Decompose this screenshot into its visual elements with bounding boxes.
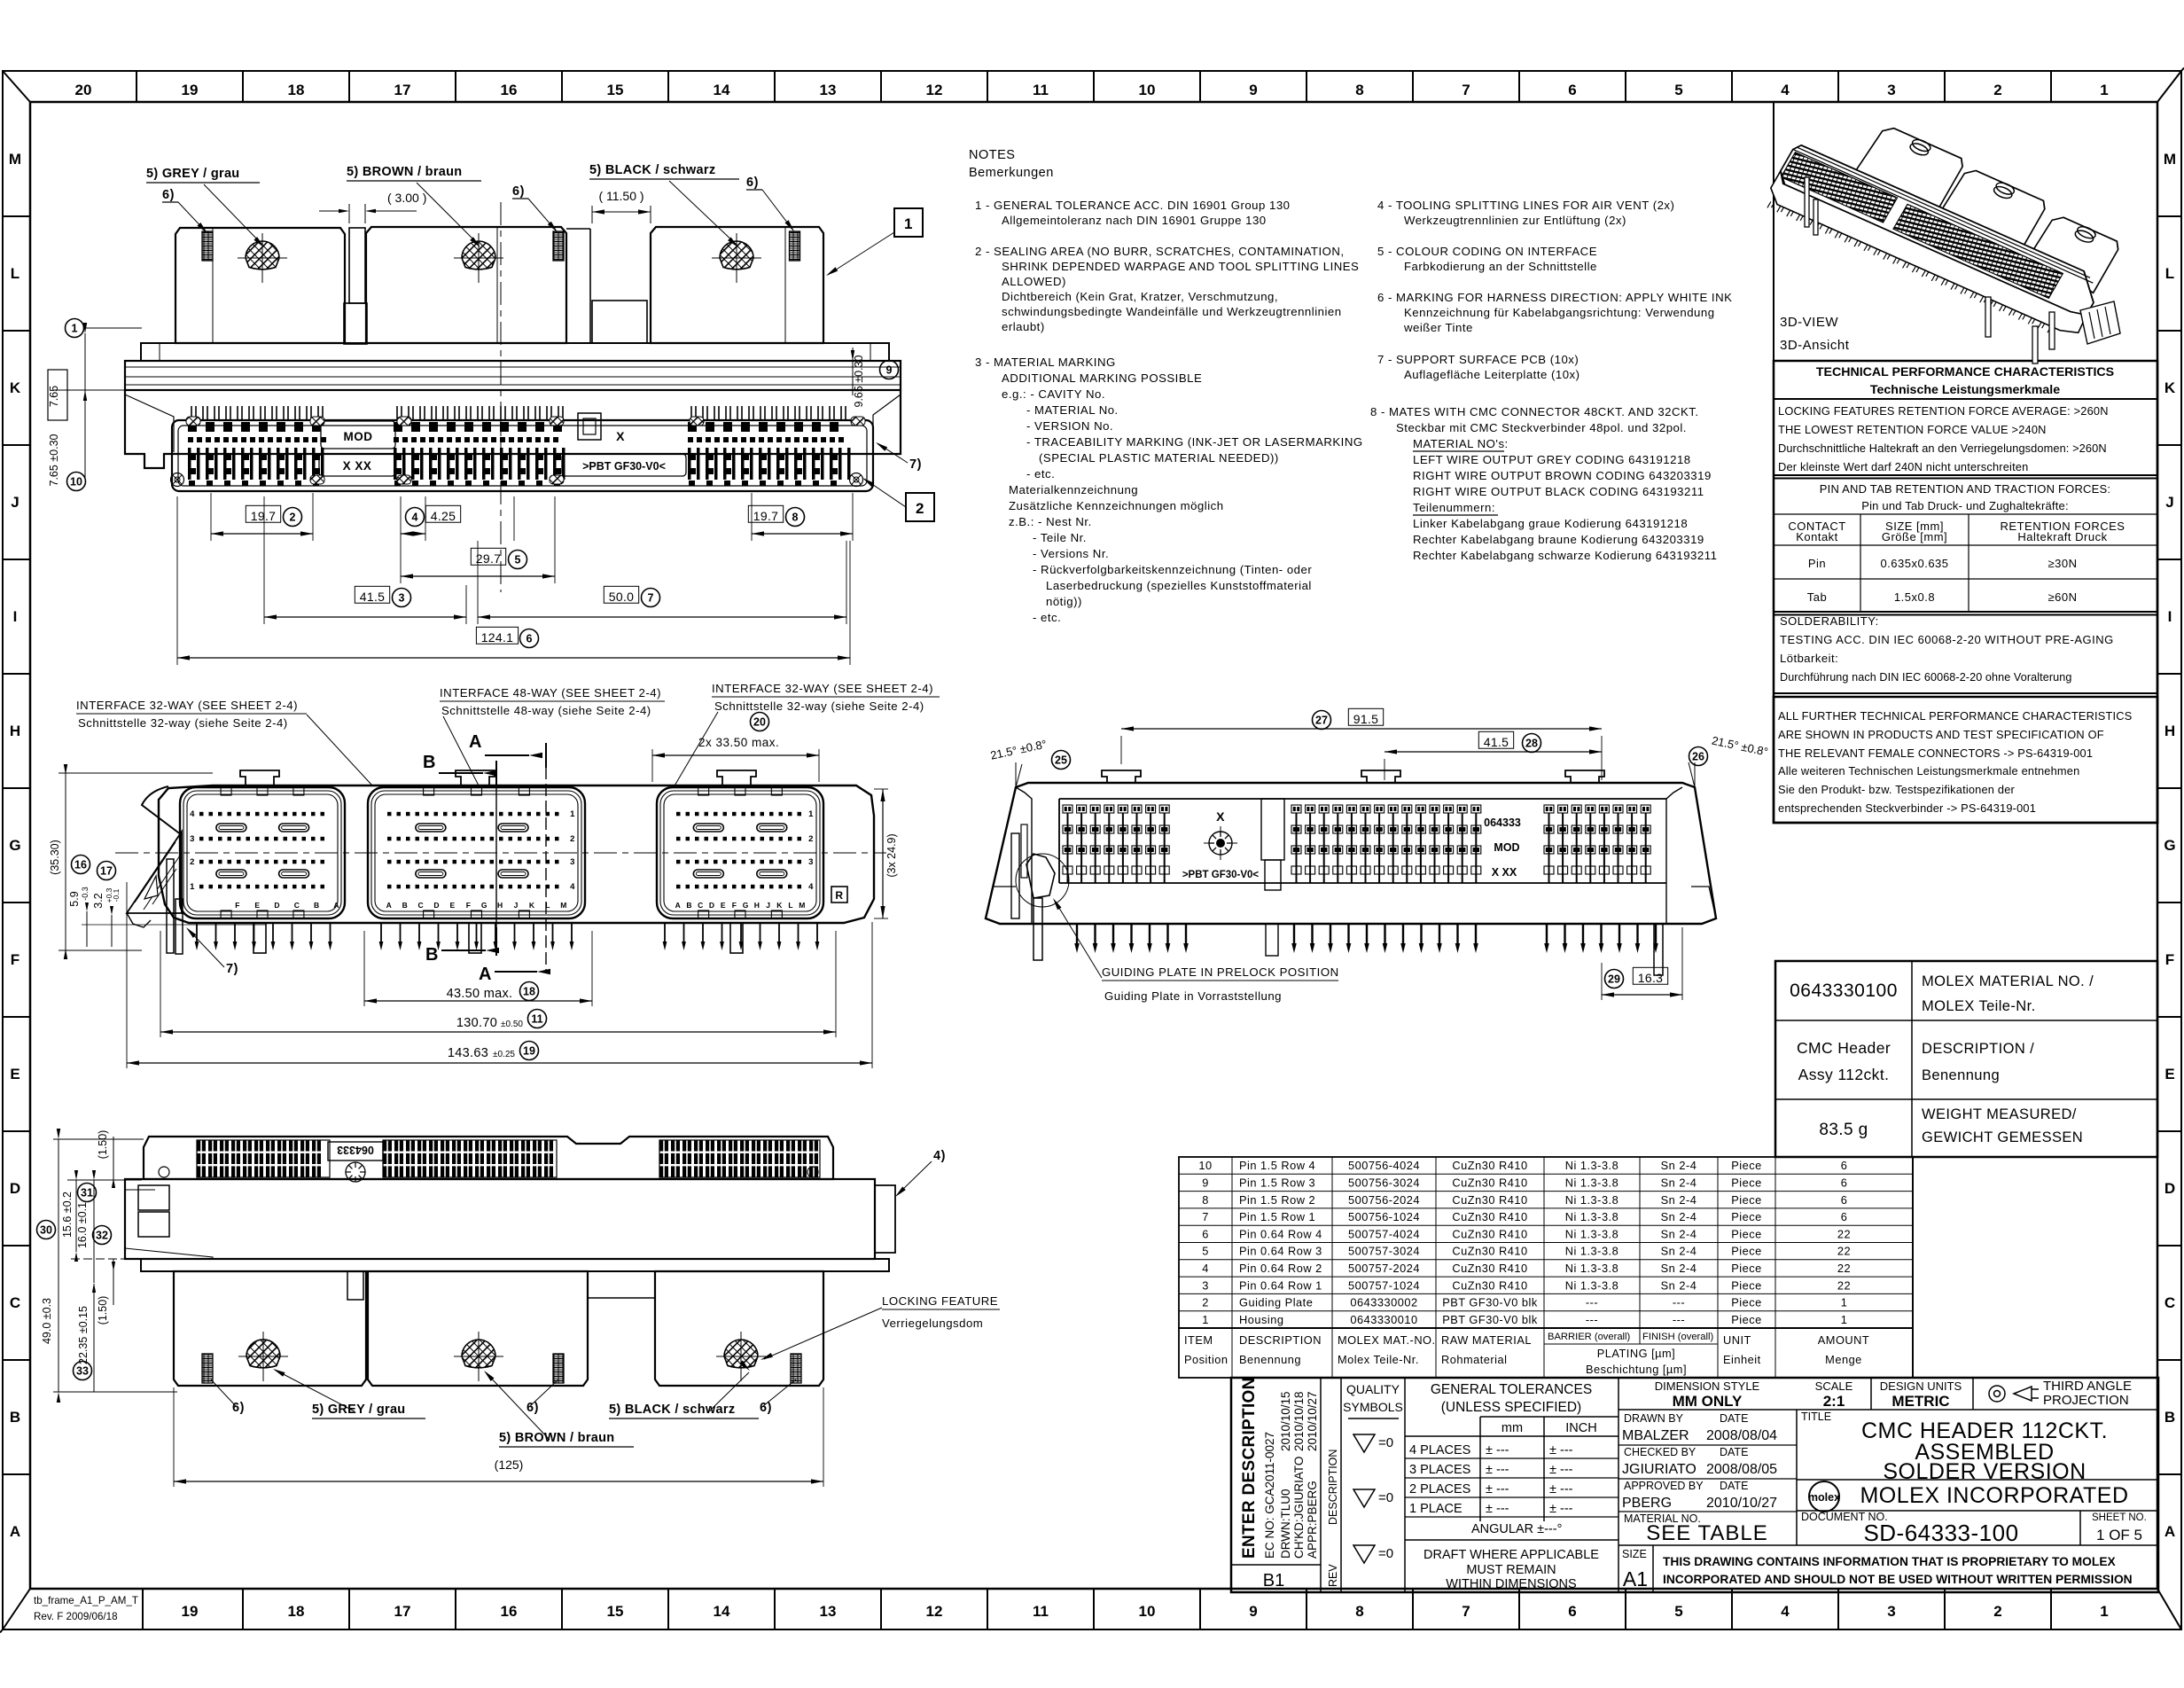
svg-text:METRIC: METRIC bbox=[1891, 1393, 1949, 1410]
svg-text:D: D bbox=[2164, 1180, 2175, 1197]
svg-text:Ni 1.3-3.8: Ni 1.3-3.8 bbox=[1565, 1262, 1618, 1275]
svg-text:APPROVED BY: APPROVED BY bbox=[1624, 1480, 1704, 1492]
svg-text:1.5x0.8: 1.5x0.8 bbox=[1894, 590, 1935, 604]
svg-text:B: B bbox=[2164, 1409, 2175, 1426]
svg-text:DATE: DATE bbox=[1720, 1446, 1748, 1458]
svg-text:Piece: Piece bbox=[1731, 1262, 1762, 1275]
svg-text:SHEET NO.: SHEET NO. bbox=[2092, 1512, 2147, 1523]
svg-text:MM ONLY: MM ONLY bbox=[1673, 1393, 1743, 1410]
svg-text:1: 1 bbox=[72, 322, 78, 334]
svg-text:MOLEX Teile-Nr.: MOLEX Teile-Nr. bbox=[1922, 998, 2036, 1014]
svg-text:CuZn30 R410: CuZn30 R410 bbox=[1452, 1193, 1527, 1207]
svg-text:Alle weiteren Technischen Leis: Alle weiteren Technischen Leistungsmerkm… bbox=[1778, 764, 2079, 778]
svg-text:Sn 2-4: Sn 2-4 bbox=[1661, 1210, 1697, 1223]
svg-text:1: 1 bbox=[570, 809, 575, 819]
svg-text:Pin 1.5 Row 2: Pin 1.5 Row 2 bbox=[1239, 1193, 1315, 1207]
svg-text:Ni 1.3-3.8: Ni 1.3-3.8 bbox=[1565, 1210, 1618, 1223]
svg-text:- Teile Nr.: - Teile Nr. bbox=[1033, 531, 1087, 544]
svg-text:3: 3 bbox=[399, 591, 405, 604]
svg-text:2: 2 bbox=[570, 834, 575, 844]
svg-text:e.g.: - CAVITY No.: e.g.: - CAVITY No. bbox=[1002, 387, 1105, 401]
svg-text:E: E bbox=[721, 901, 726, 910]
svg-text:2: 2 bbox=[1202, 1296, 1209, 1309]
svg-text:6: 6 bbox=[526, 632, 533, 645]
svg-text:10: 10 bbox=[70, 475, 82, 488]
svg-text:Schnittstelle 32-way (siehe Se: Schnittstelle 32-way (siehe Seite 2-4) bbox=[78, 716, 288, 730]
svg-text:16: 16 bbox=[501, 1603, 518, 1620]
svg-text:6): 6) bbox=[526, 1401, 539, 1415]
svg-text:16.0 ±0.1: 16.0 ±0.1 bbox=[76, 1202, 89, 1248]
svg-text:25: 25 bbox=[1055, 754, 1067, 766]
svg-text:13: 13 bbox=[820, 1603, 837, 1620]
svg-text:ENTER DESCRIPTION: ENTER DESCRIPTION bbox=[1240, 1377, 1259, 1559]
svg-text:Allgemeintoleranz nach DIN 169: Allgemeintoleranz nach DIN 16901 Gruppe … bbox=[1002, 214, 1267, 227]
svg-text:± ---: ± --- bbox=[1486, 1482, 1509, 1497]
svg-text:2008/08/04: 2008/08/04 bbox=[1706, 1428, 1777, 1443]
svg-text:5.9: 5.9 bbox=[68, 891, 81, 906]
svg-text:REV: REV bbox=[1327, 1564, 1339, 1587]
svg-text:±0.25: ±0.25 bbox=[493, 1050, 515, 1059]
svg-text:2010/10/15: 2010/10/15 bbox=[1279, 1391, 1292, 1451]
svg-text:Ni 1.3-3.8: Ni 1.3-3.8 bbox=[1565, 1245, 1618, 1258]
svg-text:INCORPORATED AND SHOULD NOT BE: INCORPORATED AND SHOULD NOT BE USED WITH… bbox=[1663, 1573, 2133, 1586]
svg-text:32: 32 bbox=[96, 1229, 108, 1241]
svg-text:500756-1024: 500756-1024 bbox=[1348, 1210, 1420, 1223]
svg-text:DATE: DATE bbox=[1720, 1480, 1748, 1492]
svg-text:Teilenummern:: Teilenummern: bbox=[1413, 501, 1495, 514]
svg-text:=0: =0 bbox=[1378, 1546, 1393, 1561]
svg-text:4 - TOOLING SPLITTING LINES FO: 4 - TOOLING SPLITTING LINES FOR AIR VENT… bbox=[1377, 199, 1674, 212]
svg-text:2 - SEALING AREA (NO BURR, SCR: 2 - SEALING AREA (NO BURR, SCRATCHES, CO… bbox=[975, 245, 1345, 258]
svg-text:nötig)): nötig)) bbox=[1046, 595, 1082, 608]
svg-text:2: 2 bbox=[190, 857, 195, 867]
svg-text:(1.50): (1.50) bbox=[97, 1130, 109, 1160]
svg-text:entsprechenden Steckverbinder: entsprechenden Steckverbinder -> PS-6431… bbox=[1778, 801, 2036, 815]
svg-text:FINISH (overall): FINISH (overall) bbox=[1642, 1332, 1713, 1342]
svg-text:10: 10 bbox=[1198, 1159, 1212, 1172]
svg-text:X: X bbox=[1216, 809, 1225, 824]
svg-text:SD-64333-100: SD-64333-100 bbox=[1863, 1520, 2018, 1546]
svg-text:91.5: 91.5 bbox=[1353, 712, 1378, 726]
svg-text:SEE TABLE: SEE TABLE bbox=[1646, 1521, 1768, 1545]
svg-text:A: A bbox=[675, 901, 682, 910]
svg-text:- VERSION No.: - VERSION No. bbox=[1026, 419, 1113, 433]
svg-text:PBERG: PBERG bbox=[1622, 1496, 1672, 1511]
svg-text:C: C bbox=[10, 1294, 20, 1311]
svg-text:3: 3 bbox=[190, 834, 195, 844]
svg-text:A: A bbox=[469, 732, 482, 752]
svg-text:500756-2024: 500756-2024 bbox=[1348, 1193, 1420, 1207]
svg-text:PIN AND TAB RETENTION AND TRAC: PIN AND TAB RETENTION AND TRACTION FORCE… bbox=[1820, 482, 2110, 496]
svg-text:Pin 0.64 Row 1: Pin 0.64 Row 1 bbox=[1239, 1278, 1322, 1292]
svg-text:SOLDERABILITY:: SOLDERABILITY: bbox=[1780, 614, 1879, 628]
svg-text:1 OF 5: 1 OF 5 bbox=[2096, 1527, 2142, 1543]
svg-text:Rechter Kabelabgang schwarze K: Rechter Kabelabgang schwarze Kodierung 6… bbox=[1413, 549, 1717, 562]
svg-text:43.50 max.: 43.50 max. bbox=[447, 987, 513, 1001]
svg-text:50.0: 50.0 bbox=[609, 590, 634, 604]
svg-text:3 PLACES: 3 PLACES bbox=[1409, 1463, 1470, 1477]
svg-text:3D-Ansicht: 3D-Ansicht bbox=[1780, 338, 1850, 353]
svg-text:RIGHT WIRE OUTPUT BLACK CODING: RIGHT WIRE OUTPUT BLACK CODING 643193211 bbox=[1413, 485, 1704, 498]
svg-text:- MATERIAL No.: - MATERIAL No. bbox=[1026, 403, 1119, 417]
svg-text:1: 1 bbox=[1202, 1313, 1209, 1326]
svg-text:B: B bbox=[10, 1409, 20, 1426]
svg-text:Pin 0.64 Row 4: Pin 0.64 Row 4 bbox=[1239, 1227, 1322, 1240]
svg-text:11: 11 bbox=[1033, 82, 1049, 98]
svg-text:>PBT GF30-V0<: >PBT GF30-V0< bbox=[1182, 870, 1260, 880]
svg-text:28: 28 bbox=[1525, 737, 1538, 749]
svg-text:20: 20 bbox=[75, 82, 92, 98]
svg-text:Technische Leistungsmerkmale: Technische Leistungsmerkmale bbox=[1870, 383, 2060, 397]
svg-text:Rev. F 2009/06/18: Rev. F 2009/06/18 bbox=[34, 1611, 118, 1622]
svg-text:7: 7 bbox=[648, 591, 654, 604]
svg-text:D: D bbox=[10, 1180, 20, 1197]
svg-text:5) GREY / grau: 5) GREY / grau bbox=[146, 167, 239, 181]
svg-text:TITLE: TITLE bbox=[1801, 1411, 1831, 1423]
svg-text:13: 13 bbox=[820, 82, 837, 98]
svg-text:± ---: ± --- bbox=[1486, 1502, 1509, 1516]
svg-text:---: --- bbox=[1673, 1296, 1685, 1309]
svg-text:Auflagefläche Leiterplatte (10: Auflagefläche Leiterplatte (10x) bbox=[1404, 368, 1580, 381]
svg-text:Guiding Plate in Vorraststellu: Guiding Plate in Vorraststellung bbox=[1104, 989, 1282, 1003]
svg-text:9: 9 bbox=[1249, 1603, 1257, 1620]
svg-text:7): 7) bbox=[226, 962, 238, 976]
svg-text:6: 6 bbox=[1841, 1176, 1848, 1190]
svg-text:G: G bbox=[481, 901, 487, 910]
svg-text:A: A bbox=[333, 901, 339, 910]
svg-text:3D-VIEW: 3D-VIEW bbox=[1780, 315, 1838, 330]
svg-text:500757-2024: 500757-2024 bbox=[1348, 1262, 1420, 1275]
svg-text:- etc.: - etc. bbox=[1026, 467, 1055, 481]
svg-text:83.5 g: 83.5 g bbox=[1819, 1121, 1868, 1139]
svg-text:SCALE: SCALE bbox=[1815, 1379, 1853, 1393]
svg-text:Pin: Pin bbox=[1808, 557, 1826, 570]
svg-text:4: 4 bbox=[808, 882, 814, 892]
svg-text:7 - SUPPORT SURFACE PCB (10x): 7 - SUPPORT SURFACE PCB (10x) bbox=[1377, 353, 1579, 366]
svg-text:Sn 2-4: Sn 2-4 bbox=[1661, 1176, 1697, 1190]
svg-text:4.25: 4.25 bbox=[431, 509, 456, 523]
svg-text:J: J bbox=[11, 494, 19, 511]
svg-text:7: 7 bbox=[1462, 1603, 1470, 1620]
svg-text:19.7: 19.7 bbox=[251, 509, 276, 523]
svg-text:4): 4) bbox=[933, 1149, 946, 1163]
svg-text:1 - GENERAL TOLERANCE ACC. DIN: 1 - GENERAL TOLERANCE ACC. DIN 16901 Gro… bbox=[975, 199, 1291, 212]
svg-text:Sn 2-4: Sn 2-4 bbox=[1661, 1262, 1697, 1275]
svg-text:500756-4024: 500756-4024 bbox=[1348, 1159, 1420, 1172]
svg-text:5: 5 bbox=[1674, 1603, 1682, 1620]
svg-text:MBALZER: MBALZER bbox=[1622, 1428, 1689, 1443]
svg-text:MATERIAL NO's:: MATERIAL NO's: bbox=[1413, 437, 1509, 450]
svg-text:4: 4 bbox=[190, 809, 195, 819]
svg-text:RIGHT WIRE OUTPUT BROWN CODING: RIGHT WIRE OUTPUT BROWN CODING 643203319 bbox=[1413, 469, 1712, 482]
svg-text:NOTES: NOTES bbox=[969, 148, 1015, 162]
svg-text:5: 5 bbox=[515, 553, 521, 566]
svg-text:M: M bbox=[560, 901, 567, 910]
svg-text:7): 7) bbox=[909, 457, 922, 472]
svg-text:GENERAL TOLERANCES: GENERAL TOLERANCES bbox=[1431, 1382, 1592, 1397]
svg-text:---: --- bbox=[1586, 1296, 1598, 1309]
svg-text:5 - COLOUR CODING ON INTERFACE: 5 - COLOUR CODING ON INTERFACE bbox=[1377, 245, 1597, 258]
svg-text:5) BROWN / braun: 5) BROWN / braun bbox=[347, 165, 462, 179]
svg-text:2:1: 2:1 bbox=[1823, 1393, 1845, 1410]
svg-text:11: 11 bbox=[1033, 1603, 1049, 1620]
svg-text:14: 14 bbox=[714, 82, 730, 98]
svg-text:2: 2 bbox=[916, 500, 924, 517]
svg-text:6 - MARKING FOR HARNESS DIRECT: 6 - MARKING FOR HARNESS DIRECTION: APPLY… bbox=[1377, 291, 1732, 304]
svg-text:143.63: 143.63 bbox=[448, 1046, 488, 1060]
svg-text:Rechter Kabelabgang braune Kod: Rechter Kabelabgang braune Kodierung 643… bbox=[1413, 533, 1704, 546]
svg-text:18: 18 bbox=[288, 1603, 305, 1620]
svg-text:11: 11 bbox=[531, 1012, 542, 1025]
svg-text:Benennung: Benennung bbox=[1922, 1067, 2000, 1083]
svg-text:Durchführung nach DIN IEC 6006: Durchführung nach DIN IEC 60068-2-20 ohn… bbox=[1780, 671, 2071, 684]
svg-text:H: H bbox=[497, 901, 503, 910]
svg-text:9.65 ±0.30: 9.65 ±0.30 bbox=[853, 355, 865, 407]
svg-text:Piece: Piece bbox=[1731, 1227, 1762, 1240]
svg-text:---: --- bbox=[1586, 1313, 1598, 1326]
svg-text:2010/10/27: 2010/10/27 bbox=[1706, 1496, 1777, 1511]
svg-text:2 PLACES: 2 PLACES bbox=[1409, 1482, 1470, 1497]
svg-text:7: 7 bbox=[1462, 82, 1470, 98]
svg-text:M: M bbox=[9, 151, 21, 168]
svg-text:DATE: DATE bbox=[1720, 1412, 1748, 1425]
svg-text:500757-4024: 500757-4024 bbox=[1348, 1227, 1420, 1240]
svg-text:Piece: Piece bbox=[1731, 1210, 1762, 1223]
svg-text:DRAFT WHERE APPLICABLE: DRAFT WHERE APPLICABLE bbox=[1423, 1548, 1599, 1562]
svg-text:2010/10/27: 2010/10/27 bbox=[1306, 1391, 1319, 1451]
svg-text:weißer Tinte: weißer Tinte bbox=[1403, 321, 1473, 334]
svg-text:15: 15 bbox=[607, 1603, 624, 1620]
svg-text:1 PLACE: 1 PLACE bbox=[1409, 1502, 1462, 1516]
svg-text:C: C bbox=[417, 901, 424, 910]
svg-text:500757-3024: 500757-3024 bbox=[1348, 1245, 1420, 1258]
svg-text:Sie den Produkt- bzw. Testspez: Sie den Produkt- bzw. Testspezifikatione… bbox=[1778, 783, 2016, 796]
svg-text:X: X bbox=[616, 429, 625, 443]
svg-text:Laserbedruckung (spezielles Ku: Laserbedruckung (spezielles Kunststoffma… bbox=[1046, 579, 1312, 592]
svg-text:8: 8 bbox=[792, 511, 799, 523]
svg-text:2: 2 bbox=[290, 511, 296, 523]
svg-text:SOLDER VERSION: SOLDER VERSION bbox=[1883, 1459, 2086, 1484]
svg-text:17: 17 bbox=[100, 864, 113, 877]
svg-text:30: 30 bbox=[40, 1223, 52, 1236]
svg-text:2: 2 bbox=[808, 834, 814, 844]
svg-text:LOCKING FEATURE: LOCKING FEATURE bbox=[882, 1294, 998, 1308]
svg-text:E: E bbox=[254, 901, 260, 910]
svg-text:(3x 24.9): (3x 24.9) bbox=[885, 833, 898, 877]
svg-text:K: K bbox=[2164, 379, 2176, 396]
svg-text:33: 33 bbox=[76, 1364, 89, 1377]
svg-text:Kennzeichnung für Kabelabgangs: Kennzeichnung für Kabelabgangsrichtung: … bbox=[1404, 306, 1715, 319]
svg-text:124.1: 124.1 bbox=[481, 630, 514, 645]
svg-text:(125): (125) bbox=[495, 1457, 524, 1472]
svg-text:Der kleinste Wert darf 240N ni: Der kleinste Wert darf 240N nicht unters… bbox=[1778, 460, 2029, 473]
svg-text:B: B bbox=[686, 901, 692, 910]
svg-text:3.2: 3.2 bbox=[92, 893, 105, 908]
svg-text:6): 6) bbox=[232, 1401, 245, 1415]
svg-text:DRWN:TLU0: DRWN:TLU0 bbox=[1279, 1489, 1292, 1559]
svg-text:D: D bbox=[709, 901, 715, 910]
svg-text:Tab: Tab bbox=[1807, 590, 1827, 604]
svg-text:molex: molex bbox=[1808, 1491, 1840, 1504]
svg-text:A: A bbox=[386, 901, 393, 910]
svg-text:22: 22 bbox=[1837, 1278, 1851, 1292]
svg-text:19: 19 bbox=[523, 1044, 535, 1057]
svg-text:4: 4 bbox=[1781, 1603, 1790, 1620]
svg-text:± ---: ± --- bbox=[1486, 1463, 1509, 1477]
svg-text:17: 17 bbox=[394, 82, 411, 98]
svg-text:29.7: 29.7 bbox=[476, 551, 501, 566]
svg-text:Ni 1.3-3.8: Ni 1.3-3.8 bbox=[1565, 1159, 1618, 1172]
svg-text:F: F bbox=[11, 951, 19, 968]
svg-text:>PBT GF30-V0<: >PBT GF30-V0< bbox=[582, 460, 666, 473]
svg-text:X XX: X XX bbox=[1492, 866, 1517, 879]
svg-text:C: C bbox=[294, 901, 300, 910]
svg-text:9: 9 bbox=[1249, 82, 1257, 98]
svg-text:z.B.: - Nest Nr.: z.B.: - Nest Nr. bbox=[1009, 515, 1092, 528]
svg-text:2: 2 bbox=[1993, 1603, 2001, 1620]
svg-text:DESCRIPTION: DESCRIPTION bbox=[1239, 1333, 1322, 1347]
svg-text:(1.50): (1.50) bbox=[97, 1296, 109, 1325]
svg-text:Position: Position bbox=[1184, 1353, 1228, 1366]
svg-text:G: G bbox=[2164, 837, 2175, 854]
svg-text:CuZn30 R410: CuZn30 R410 bbox=[1452, 1245, 1527, 1258]
svg-text:41.5: 41.5 bbox=[1484, 735, 1509, 749]
svg-text:CuZn30 R410: CuZn30 R410 bbox=[1452, 1176, 1527, 1190]
svg-text:Pin 1.5 Row 4: Pin 1.5 Row 4 bbox=[1239, 1159, 1315, 1172]
svg-text:ADDITIONAL MARKING POSSIBLE: ADDITIONAL MARKING POSSIBLE bbox=[1002, 371, 1202, 385]
svg-text:9: 9 bbox=[1202, 1176, 1209, 1190]
svg-text:Piece: Piece bbox=[1731, 1296, 1762, 1309]
svg-text:=0: =0 bbox=[1378, 1490, 1393, 1505]
svg-text:19: 19 bbox=[182, 1603, 199, 1620]
svg-text:16.3: 16.3 bbox=[1638, 971, 1663, 985]
svg-text:Piece: Piece bbox=[1731, 1278, 1762, 1292]
svg-text:8: 8 bbox=[1355, 82, 1363, 98]
svg-text:5) BLACK / schwarz: 5) BLACK / schwarz bbox=[589, 163, 715, 177]
svg-text:Steckbar mit CMC Steckverbinde: Steckbar mit CMC Steckverbinder 48pol. u… bbox=[1396, 421, 1687, 434]
svg-text:6: 6 bbox=[1568, 82, 1576, 98]
svg-text:MOD: MOD bbox=[344, 430, 373, 443]
svg-text:17: 17 bbox=[394, 1603, 411, 1620]
svg-text:± ---: ± --- bbox=[1486, 1443, 1509, 1457]
svg-text:DIMENSION STYLE: DIMENSION STYLE bbox=[1655, 1379, 1760, 1393]
svg-text:Durchschnittliche Haltekraft a: Durchschnittliche Haltekraft an den Verr… bbox=[1778, 442, 2107, 455]
svg-text:TECHNICAL PERFORMANCE CHARACTE: TECHNICAL PERFORMANCE CHARACTERISTICS bbox=[1816, 365, 2114, 379]
svg-text:3: 3 bbox=[808, 857, 814, 867]
svg-text:Farbkodierung an der Schnittst: Farbkodierung an der Schnittstelle bbox=[1404, 260, 1597, 273]
svg-text:Piece: Piece bbox=[1731, 1193, 1762, 1207]
svg-text:K: K bbox=[10, 379, 21, 396]
svg-text:B: B bbox=[425, 945, 439, 965]
svg-text:GEWICHT GEMESSEN: GEWICHT GEMESSEN bbox=[1922, 1129, 2083, 1145]
svg-text:130.70: 130.70 bbox=[456, 1016, 497, 1030]
svg-text:TESTING ACC. DIN IEC 60068-2-2: TESTING ACC. DIN IEC 60068-2-20 WITHOUT … bbox=[1780, 633, 2114, 646]
svg-text:THIRD ANGLE: THIRD ANGLE bbox=[2043, 1379, 2132, 1394]
svg-text:Größe [mm]: Größe [mm] bbox=[1882, 530, 1947, 543]
svg-text:1: 1 bbox=[2100, 82, 2108, 98]
svg-text:F: F bbox=[2165, 951, 2174, 968]
svg-text:Pin 1.5 Row 3: Pin 1.5 Row 3 bbox=[1239, 1176, 1315, 1190]
svg-text:M: M bbox=[799, 901, 806, 910]
svg-text:E: E bbox=[450, 901, 456, 910]
svg-text:3: 3 bbox=[570, 857, 575, 867]
svg-text:16: 16 bbox=[501, 82, 518, 98]
svg-text:Ni 1.3-3.8: Ni 1.3-3.8 bbox=[1565, 1227, 1618, 1240]
svg-text:DESCRIPTION /: DESCRIPTION / bbox=[1922, 1041, 2034, 1057]
svg-text:CuZn30 R410: CuZn30 R410 bbox=[1452, 1210, 1527, 1223]
svg-text:Guiding Plate: Guiding Plate bbox=[1239, 1296, 1313, 1309]
svg-text:F: F bbox=[466, 901, 472, 910]
svg-text:L: L bbox=[2165, 265, 2174, 282]
svg-text:22.35 ±0.15: 22.35 ±0.15 bbox=[77, 1306, 90, 1364]
svg-text:Assy 112ckt.: Assy 112ckt. bbox=[1798, 1066, 1890, 1083]
svg-text:J: J bbox=[514, 901, 519, 910]
svg-text:18: 18 bbox=[288, 82, 305, 98]
svg-text:Lötbarkeit:: Lötbarkeit: bbox=[1780, 652, 1838, 665]
svg-text:I: I bbox=[13, 608, 18, 625]
svg-text:LOCKING FEATURES RETENTION FOR: LOCKING FEATURES RETENTION FORCE AVERAGE… bbox=[1778, 404, 2109, 418]
svg-text:LEFT WIRE OUTPUT GREY CODING: LEFT WIRE OUTPUT GREY CODING 643191218 bbox=[1413, 453, 1691, 466]
svg-text:(35.30): (35.30) bbox=[49, 840, 61, 875]
svg-text:DESIGN UNITS: DESIGN UNITS bbox=[1880, 1379, 1962, 1393]
svg-text:THE LOWEST RETENTION FORCE VAL: THE LOWEST RETENTION FORCE VALUE >240N bbox=[1778, 423, 2047, 436]
svg-text:1: 1 bbox=[2100, 1603, 2108, 1620]
svg-text:C: C bbox=[698, 901, 704, 910]
svg-text:2008/08/05: 2008/08/05 bbox=[1706, 1462, 1777, 1477]
svg-text:500757-1024: 500757-1024 bbox=[1348, 1278, 1420, 1292]
svg-text:Benennung: Benennung bbox=[1239, 1353, 1301, 1366]
svg-text:H: H bbox=[2164, 723, 2175, 739]
svg-text:B1: B1 bbox=[1263, 1571, 1284, 1590]
svg-text:ALL FURTHER TECHNICAL PERFORMA: ALL FURTHER TECHNICAL PERFORMANCE CHARAC… bbox=[1778, 709, 2132, 723]
svg-text:CMC Header: CMC Header bbox=[1797, 1039, 1891, 1057]
svg-text:0643330100: 0643330100 bbox=[1790, 981, 1898, 1001]
svg-text:2010/10/18: 2010/10/18 bbox=[1292, 1391, 1306, 1451]
svg-text:QUALITY: QUALITY bbox=[1346, 1382, 1400, 1396]
svg-text:B: B bbox=[423, 753, 436, 772]
svg-text:I: I bbox=[2168, 608, 2172, 625]
svg-text:6): 6) bbox=[746, 176, 759, 190]
svg-text:6): 6) bbox=[512, 184, 525, 199]
svg-text:9: 9 bbox=[886, 363, 893, 376]
svg-text:A: A bbox=[10, 1523, 20, 1540]
svg-text:19: 19 bbox=[182, 82, 199, 98]
svg-text:CHECKED BY: CHECKED BY bbox=[1624, 1446, 1696, 1458]
svg-text:1: 1 bbox=[190, 882, 195, 892]
svg-text:12: 12 bbox=[926, 1603, 943, 1620]
svg-text:Pin 0.64 Row 2: Pin 0.64 Row 2 bbox=[1239, 1262, 1322, 1275]
svg-text:SIZE: SIZE bbox=[1622, 1548, 1647, 1560]
svg-text:APPR:PBERG: APPR:PBERG bbox=[1306, 1481, 1319, 1559]
svg-text:Pin 1.5 Row 1: Pin 1.5 Row 1 bbox=[1239, 1210, 1315, 1223]
svg-text:SYMBOLS: SYMBOLS bbox=[1343, 1400, 1403, 1414]
svg-text:mm: mm bbox=[1501, 1421, 1523, 1435]
svg-text:BARRIER (overall): BARRIER (overall) bbox=[1548, 1332, 1631, 1342]
svg-text:CuZn30 R410: CuZn30 R410 bbox=[1452, 1227, 1527, 1240]
svg-text:5) BROWN / braun: 5) BROWN / braun bbox=[499, 1431, 614, 1445]
svg-text:15.6 ±0.2: 15.6 ±0.2 bbox=[61, 1192, 74, 1238]
svg-text:Pin und Tab Druck- und Zughalt: Pin und Tab Druck- und Zughaltekräfte: bbox=[1861, 499, 2069, 512]
svg-text:Sn 2-4: Sn 2-4 bbox=[1661, 1245, 1697, 1258]
svg-text:- TRACEABILITY MARKING (INK-JE: - TRACEABILITY MARKING (INK-JET OR LASER… bbox=[1026, 435, 1363, 449]
svg-text:A: A bbox=[2164, 1523, 2175, 1540]
svg-text:3: 3 bbox=[1887, 1603, 1895, 1620]
svg-text:WEIGHT MEASURED/: WEIGHT MEASURED/ bbox=[1922, 1106, 2077, 1122]
svg-text:Einheit: Einheit bbox=[1723, 1353, 1761, 1366]
svg-text:SHRINK DEPENDED WARPAGE AND TO: SHRINK DEPENDED WARPAGE AND TOOL SPLITTI… bbox=[1002, 260, 1359, 273]
svg-text:F: F bbox=[732, 901, 737, 910]
svg-text:schwindungsbedingte Wandeinfäl: schwindungsbedingte Wandeinfälle und Wer… bbox=[1002, 305, 1342, 318]
